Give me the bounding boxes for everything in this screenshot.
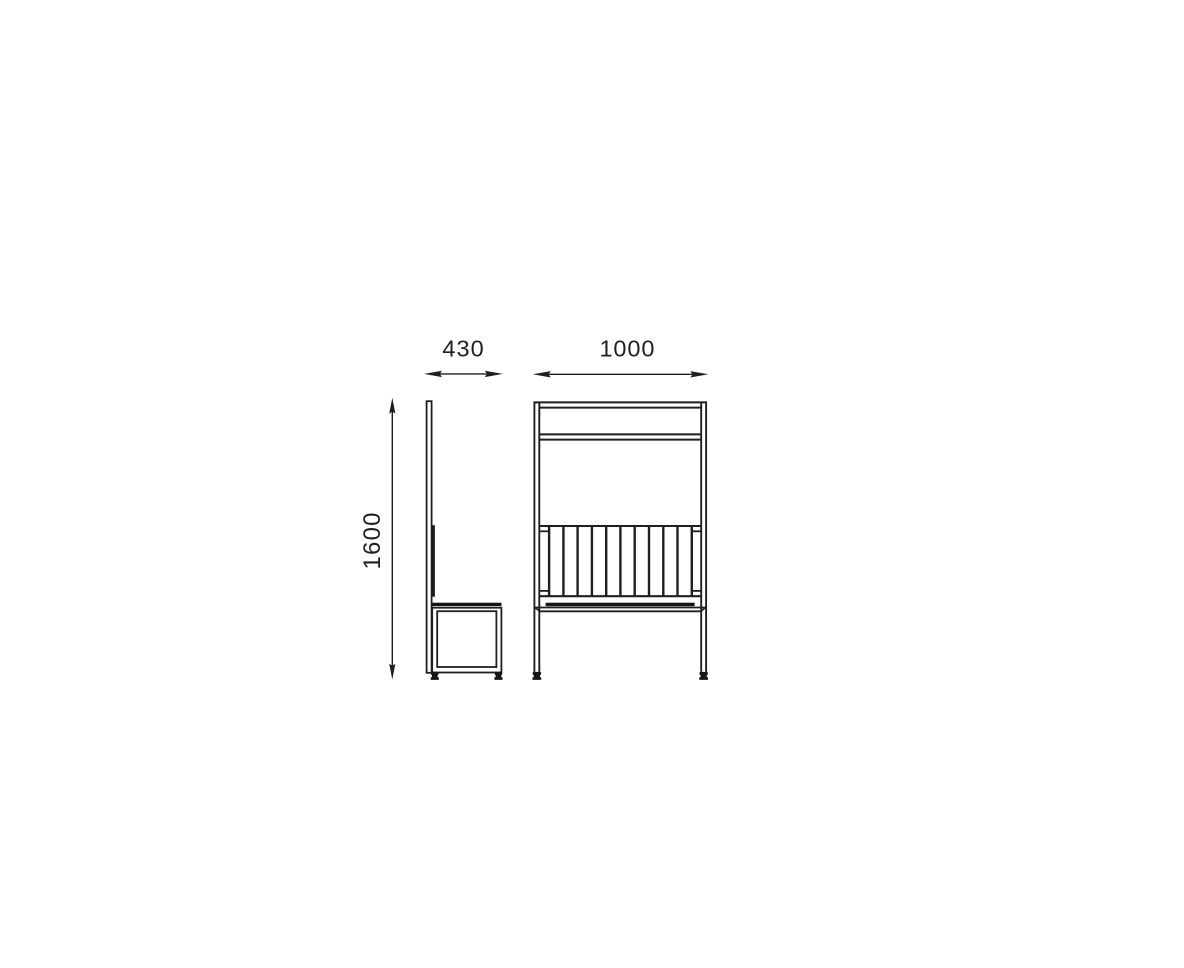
svg-text:1600: 1600 <box>359 511 386 569</box>
svg-text:1000: 1000 <box>599 336 655 362</box>
svg-text:430: 430 <box>442 336 485 362</box>
